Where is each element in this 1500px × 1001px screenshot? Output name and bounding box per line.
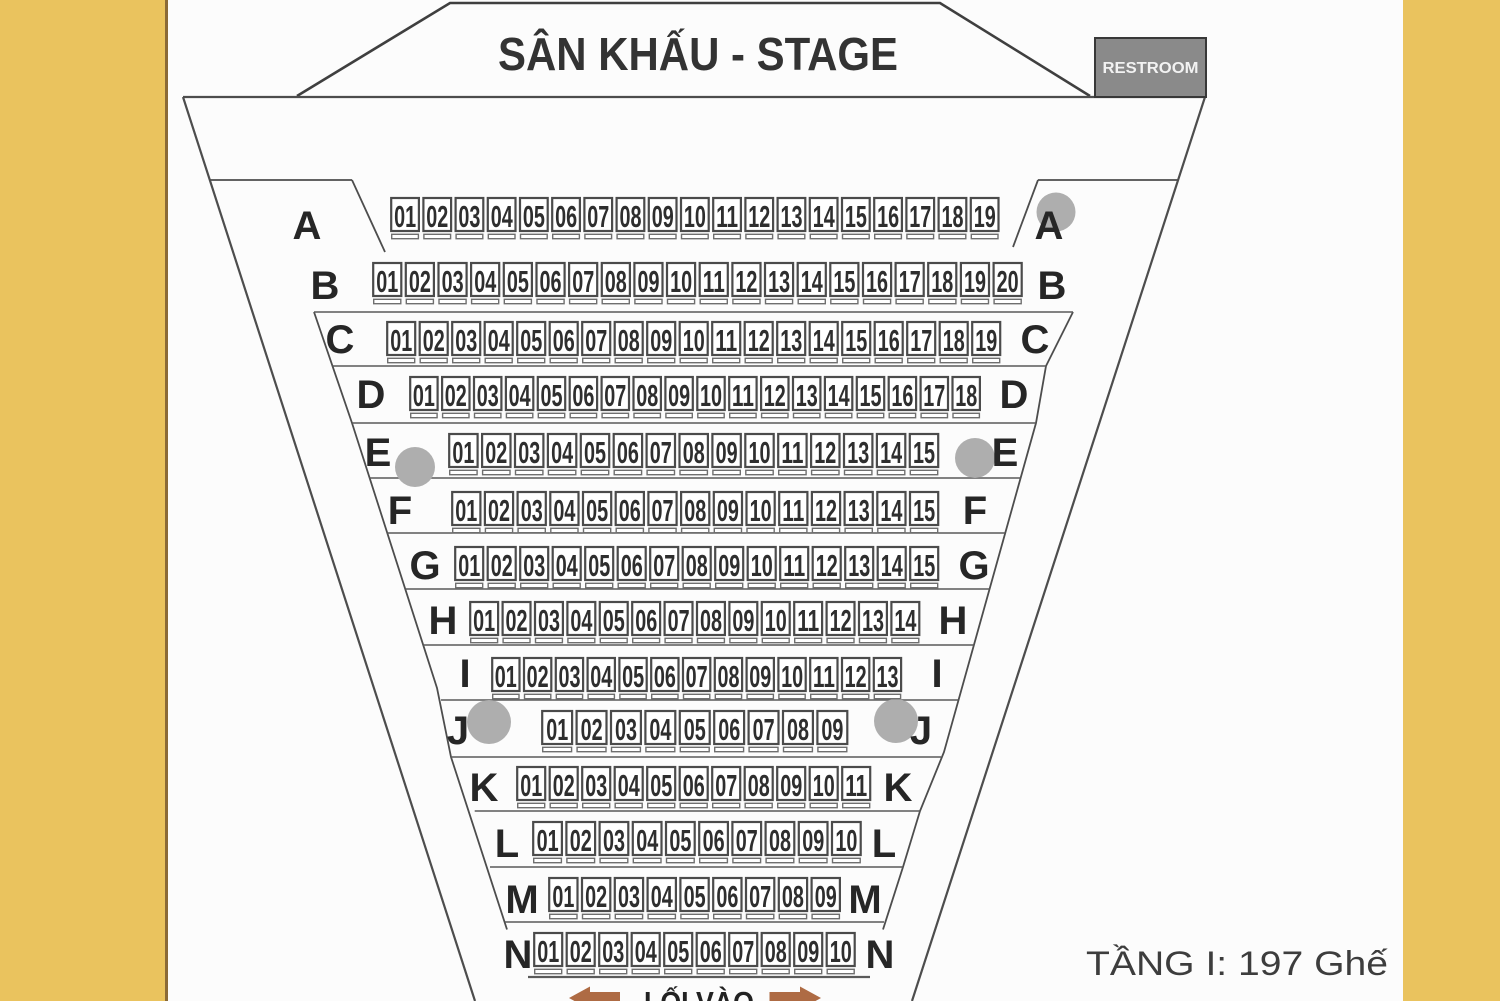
svg-text:G: G	[958, 544, 989, 588]
svg-text:03: 03	[477, 379, 499, 413]
svg-text:09: 09	[718, 549, 740, 583]
svg-text:06: 06	[621, 549, 643, 583]
svg-text:02: 02	[445, 379, 467, 413]
svg-text:05: 05	[684, 713, 706, 747]
svg-text:13: 13	[862, 604, 884, 638]
svg-text:LỐI VÀO: LỐI VÀO	[644, 985, 754, 1001]
svg-text:17: 17	[923, 379, 945, 413]
svg-text:01: 01	[552, 880, 574, 914]
svg-text:03: 03	[538, 604, 560, 638]
svg-text:F: F	[388, 489, 412, 533]
svg-text:07: 07	[749, 880, 771, 914]
svg-text:02: 02	[570, 824, 592, 858]
svg-text:08: 08	[683, 436, 705, 470]
svg-text:05: 05	[507, 265, 529, 299]
svg-text:07: 07	[587, 200, 609, 234]
svg-text:20: 20	[997, 265, 1019, 299]
svg-text:11: 11	[703, 265, 725, 299]
svg-text:E: E	[365, 431, 392, 475]
svg-text:06: 06	[619, 494, 641, 528]
svg-text:14: 14	[813, 200, 835, 234]
svg-text:17: 17	[909, 200, 931, 234]
svg-text:05: 05	[684, 880, 706, 914]
svg-text:04: 04	[570, 604, 592, 638]
svg-text:01: 01	[546, 713, 568, 747]
svg-text:02: 02	[485, 436, 507, 470]
svg-text:11: 11	[797, 604, 819, 638]
svg-text:16: 16	[877, 200, 899, 234]
svg-text:02: 02	[570, 935, 592, 969]
svg-text:05: 05	[586, 494, 608, 528]
svg-text:07: 07	[732, 935, 754, 969]
svg-text:03: 03	[455, 324, 477, 358]
svg-text:12: 12	[748, 200, 770, 234]
svg-text:06: 06	[540, 265, 562, 299]
svg-text:01: 01	[376, 265, 398, 299]
svg-text:03: 03	[523, 549, 545, 583]
svg-text:09: 09	[802, 824, 824, 858]
svg-text:01: 01	[394, 200, 416, 234]
svg-text:10: 10	[670, 265, 692, 299]
svg-text:12: 12	[764, 379, 786, 413]
svg-text:12: 12	[816, 549, 838, 583]
svg-text:01: 01	[537, 824, 559, 858]
svg-text:19: 19	[975, 324, 997, 358]
svg-text:02: 02	[527, 660, 549, 694]
svg-text:J: J	[447, 709, 469, 753]
svg-text:03: 03	[458, 200, 480, 234]
svg-text:09: 09	[815, 880, 837, 914]
svg-text:14: 14	[828, 379, 850, 413]
svg-text:04: 04	[651, 880, 673, 914]
svg-text:09: 09	[650, 324, 672, 358]
svg-text:13: 13	[768, 265, 790, 299]
svg-text:E: E	[992, 431, 1019, 475]
svg-text:13: 13	[847, 436, 869, 470]
svg-text:09: 09	[652, 200, 674, 234]
svg-text:14: 14	[813, 324, 835, 358]
svg-text:15: 15	[913, 494, 935, 528]
svg-text:06: 06	[718, 713, 740, 747]
svg-text:01: 01	[473, 604, 495, 638]
svg-text:N: N	[866, 933, 895, 977]
svg-text:B: B	[1038, 264, 1067, 308]
svg-text:07: 07	[736, 824, 758, 858]
svg-text:01: 01	[537, 935, 559, 969]
svg-text:17: 17	[910, 324, 932, 358]
svg-text:11: 11	[845, 769, 867, 803]
svg-text:02: 02	[585, 880, 607, 914]
svg-text:03: 03	[518, 436, 540, 470]
svg-text:08: 08	[765, 935, 787, 969]
svg-text:13: 13	[848, 494, 870, 528]
svg-text:04: 04	[649, 713, 671, 747]
svg-text:02: 02	[553, 769, 575, 803]
svg-text:M: M	[505, 878, 538, 922]
svg-text:08: 08	[618, 324, 640, 358]
svg-text:L: L	[495, 822, 519, 866]
svg-text:07: 07	[650, 436, 672, 470]
svg-text:K: K	[884, 766, 913, 810]
svg-text:02: 02	[491, 549, 513, 583]
svg-text:11: 11	[782, 494, 804, 528]
svg-text:09: 09	[668, 379, 690, 413]
svg-text:03: 03	[559, 660, 581, 694]
svg-text:11: 11	[781, 436, 803, 470]
svg-text:10: 10	[813, 769, 835, 803]
svg-text:F: F	[963, 489, 987, 533]
svg-text:03: 03	[585, 769, 607, 803]
svg-text:16: 16	[891, 379, 913, 413]
svg-text:17: 17	[899, 265, 921, 299]
svg-text:09: 09	[821, 713, 843, 747]
svg-text:N: N	[504, 933, 533, 977]
svg-text:07: 07	[604, 379, 626, 413]
svg-text:16: 16	[866, 265, 888, 299]
svg-text:09: 09	[732, 604, 754, 638]
svg-text:I: I	[459, 652, 470, 696]
svg-text:05: 05	[584, 436, 606, 470]
svg-text:10: 10	[830, 935, 852, 969]
svg-text:14: 14	[880, 494, 902, 528]
svg-text:01: 01	[413, 379, 435, 413]
svg-text:01: 01	[455, 494, 477, 528]
svg-text:H: H	[429, 599, 458, 643]
svg-text:08: 08	[787, 713, 809, 747]
svg-text:09: 09	[749, 660, 771, 694]
svg-text:10: 10	[684, 200, 706, 234]
svg-text:03: 03	[521, 494, 543, 528]
svg-text:11: 11	[813, 660, 835, 694]
svg-text:12: 12	[815, 494, 837, 528]
svg-text:12: 12	[830, 604, 852, 638]
svg-text:05: 05	[667, 935, 689, 969]
svg-text:03: 03	[602, 935, 624, 969]
svg-text:08: 08	[700, 604, 722, 638]
svg-text:D: D	[357, 373, 386, 417]
svg-text:07: 07	[668, 604, 690, 638]
svg-text:06: 06	[635, 604, 657, 638]
svg-text:04: 04	[556, 549, 578, 583]
svg-text:01: 01	[495, 660, 517, 694]
svg-text:12: 12	[748, 324, 770, 358]
svg-text:06: 06	[617, 436, 639, 470]
svg-text:10: 10	[751, 549, 773, 583]
svg-text:10: 10	[765, 604, 787, 638]
svg-text:18: 18	[955, 379, 977, 413]
svg-text:10: 10	[750, 494, 772, 528]
svg-text:04: 04	[635, 935, 657, 969]
svg-text:L: L	[872, 822, 896, 866]
svg-text:13: 13	[780, 324, 802, 358]
svg-text:06: 06	[716, 880, 738, 914]
svg-text:K: K	[470, 766, 499, 810]
svg-text:10: 10	[700, 379, 722, 413]
svg-text:01: 01	[452, 436, 474, 470]
svg-text:09: 09	[780, 769, 802, 803]
svg-text:11: 11	[716, 200, 738, 234]
svg-text:SÂN KHẤU - STAGE: SÂN KHẤU - STAGE	[498, 28, 898, 80]
svg-text:13: 13	[781, 200, 803, 234]
svg-text:18: 18	[943, 324, 965, 358]
svg-text:M: M	[848, 878, 881, 922]
svg-text:C: C	[1021, 318, 1050, 362]
svg-text:15: 15	[845, 324, 867, 358]
svg-text:04: 04	[474, 265, 496, 299]
svg-text:19: 19	[964, 265, 986, 299]
svg-text:16: 16	[878, 324, 900, 358]
svg-text:A: A	[293, 204, 322, 248]
svg-text:15: 15	[860, 379, 882, 413]
svg-text:08: 08	[636, 379, 658, 413]
svg-text:G: G	[409, 544, 440, 588]
svg-text:19: 19	[974, 200, 996, 234]
svg-text:08: 08	[769, 824, 791, 858]
svg-text:A: A	[1035, 204, 1064, 248]
svg-text:05: 05	[603, 604, 625, 638]
svg-text:02: 02	[488, 494, 510, 528]
svg-text:14: 14	[894, 604, 916, 638]
svg-text:08: 08	[620, 200, 642, 234]
svg-text:09: 09	[797, 935, 819, 969]
svg-text:03: 03	[442, 265, 464, 299]
svg-text:10: 10	[835, 824, 857, 858]
svg-text:TẦNG I: 197 Ghế: TẦNG I: 197 Ghế	[1086, 945, 1388, 983]
svg-text:11: 11	[732, 379, 754, 413]
svg-text:08: 08	[748, 769, 770, 803]
svg-text:13: 13	[848, 549, 870, 583]
svg-text:06: 06	[703, 824, 725, 858]
svg-text:06: 06	[683, 769, 705, 803]
svg-text:09: 09	[638, 265, 660, 299]
svg-text:06: 06	[553, 324, 575, 358]
svg-text:10: 10	[749, 436, 771, 470]
svg-text:02: 02	[423, 324, 445, 358]
svg-text:I: I	[931, 652, 942, 696]
svg-text:04: 04	[488, 324, 510, 358]
svg-text:03: 03	[603, 824, 625, 858]
svg-text:04: 04	[618, 769, 640, 803]
svg-text:02: 02	[581, 713, 603, 747]
svg-text:08: 08	[782, 880, 804, 914]
svg-text:18: 18	[931, 265, 953, 299]
svg-text:H: H	[939, 599, 968, 643]
svg-text:15: 15	[913, 549, 935, 583]
svg-text:12: 12	[814, 436, 836, 470]
svg-text:15: 15	[845, 200, 867, 234]
svg-text:07: 07	[585, 324, 607, 358]
svg-text:08: 08	[718, 660, 740, 694]
svg-text:07: 07	[715, 769, 737, 803]
svg-text:01: 01	[390, 324, 412, 358]
svg-text:02: 02	[506, 604, 528, 638]
svg-text:RESTROOM: RESTROOM	[1103, 60, 1199, 77]
svg-text:10: 10	[683, 324, 705, 358]
svg-text:04: 04	[509, 379, 531, 413]
svg-text:02: 02	[426, 200, 448, 234]
svg-text:14: 14	[801, 265, 823, 299]
svg-text:08: 08	[684, 494, 706, 528]
svg-text:15: 15	[913, 436, 935, 470]
svg-text:04: 04	[636, 824, 658, 858]
svg-text:04: 04	[551, 436, 573, 470]
svg-text:08: 08	[605, 265, 627, 299]
svg-text:07: 07	[686, 660, 708, 694]
svg-text:13: 13	[796, 379, 818, 413]
svg-text:05: 05	[520, 324, 542, 358]
svg-text:05: 05	[622, 660, 644, 694]
svg-text:05: 05	[669, 824, 691, 858]
svg-text:13: 13	[877, 660, 899, 694]
svg-text:14: 14	[880, 436, 902, 470]
svg-text:05: 05	[650, 769, 672, 803]
svg-text:08: 08	[686, 549, 708, 583]
svg-text:12: 12	[735, 265, 757, 299]
svg-text:15: 15	[833, 265, 855, 299]
svg-text:07: 07	[653, 549, 675, 583]
svg-text:04: 04	[491, 200, 513, 234]
svg-text:01: 01	[520, 769, 542, 803]
svg-text:05: 05	[523, 200, 545, 234]
svg-text:14: 14	[881, 549, 903, 583]
svg-text:03: 03	[615, 713, 637, 747]
svg-text:B: B	[311, 264, 340, 308]
svg-text:09: 09	[716, 436, 738, 470]
svg-text:11: 11	[783, 549, 805, 583]
svg-text:01: 01	[458, 549, 480, 583]
svg-text:D: D	[1000, 373, 1029, 417]
svg-text:04: 04	[590, 660, 612, 694]
svg-text:07: 07	[652, 494, 674, 528]
svg-text:12: 12	[845, 660, 867, 694]
svg-text:09: 09	[717, 494, 739, 528]
svg-text:05: 05	[541, 379, 563, 413]
svg-text:06: 06	[572, 379, 594, 413]
svg-text:C: C	[326, 318, 355, 362]
svg-text:05: 05	[588, 549, 610, 583]
svg-text:06: 06	[700, 935, 722, 969]
svg-text:04: 04	[553, 494, 575, 528]
svg-text:18: 18	[942, 200, 964, 234]
svg-text:10: 10	[781, 660, 803, 694]
svg-text:06: 06	[555, 200, 577, 234]
svg-text:02: 02	[409, 265, 431, 299]
svg-text:03: 03	[618, 880, 640, 914]
svg-text:07: 07	[753, 713, 775, 747]
svg-text:J: J	[910, 709, 932, 753]
svg-text:11: 11	[715, 324, 737, 358]
svg-text:07: 07	[572, 265, 594, 299]
svg-text:06: 06	[654, 660, 676, 694]
